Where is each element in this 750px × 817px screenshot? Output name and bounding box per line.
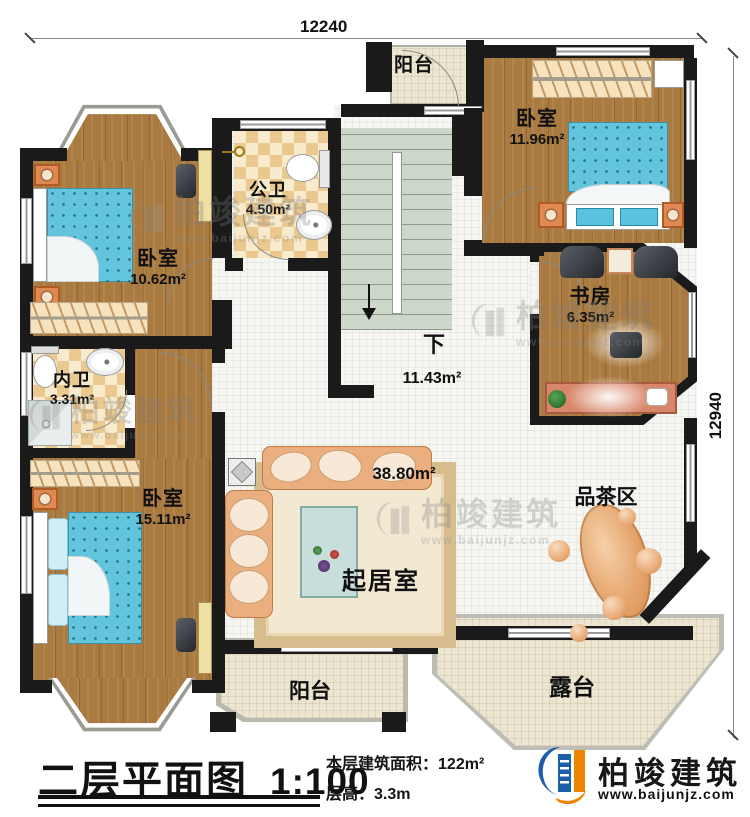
wall (225, 258, 243, 271)
stat-floor-height: 层高：3.3m (326, 780, 410, 804)
sofa-pillow (229, 534, 269, 568)
table-flowers (313, 546, 322, 555)
wardrobe (30, 302, 148, 334)
label-balcony-bottom: 阳台 (276, 680, 344, 704)
brand-url: www.baijunjz.com (598, 786, 735, 802)
wall (288, 258, 341, 271)
table-flowers (330, 550, 339, 559)
light-fixture (234, 146, 245, 157)
floor-cushion (618, 508, 636, 526)
table-flowers (318, 560, 330, 572)
shower-drain (42, 420, 50, 428)
wall (212, 349, 225, 363)
dimension-line-top (30, 38, 702, 39)
sofa-pillow (229, 570, 269, 604)
floor-cushion (636, 548, 662, 574)
tv-cabinet (198, 602, 212, 674)
label-public-bath: 公卫4.50m² (222, 180, 314, 217)
bed-cushion (620, 208, 658, 226)
floor-cushion (570, 624, 588, 642)
floor-cushion (548, 540, 570, 562)
bed-pillow (48, 574, 68, 626)
label-terrace: 露台 (536, 674, 608, 700)
bedroom-tl-window-left (21, 198, 32, 264)
stairs-arrow-head (362, 308, 376, 320)
bed-pillow (48, 518, 68, 570)
bed-headboard (33, 512, 48, 644)
floor-cushion (602, 596, 626, 620)
wardrobe (30, 460, 140, 487)
toilet-tank (319, 150, 330, 188)
bedroom-tr-window-right (686, 80, 695, 160)
plant (548, 390, 566, 408)
wall (212, 300, 232, 349)
light-fixture-arm (222, 151, 234, 153)
armchair (560, 246, 604, 278)
label-bedroom-tr: 卧室11.96m² (472, 108, 602, 148)
side-table (607, 248, 633, 274)
computer-monitor (610, 332, 642, 358)
desk-chair (646, 388, 668, 406)
label-study: 书房6.35m² (528, 286, 653, 326)
tv (176, 164, 196, 198)
nightstand (34, 164, 60, 186)
bed-sheet (566, 184, 670, 206)
wall (20, 148, 67, 161)
wall (20, 448, 135, 458)
floor-plan-page: 12240 12940 (0, 0, 750, 817)
title-underline (38, 804, 320, 807)
dimension-line-right (733, 56, 734, 738)
nightstand (662, 202, 684, 228)
public-bath-window (240, 120, 326, 129)
label-living: 起居室 (336, 568, 426, 596)
wall (464, 243, 544, 256)
stairs-arrow-stem (368, 284, 370, 310)
label-tea-area: 品茶区 (564, 486, 648, 510)
wall (20, 680, 52, 693)
desk-lamp-glow (566, 376, 652, 418)
label-private-bath: 内卫3.31m² (22, 370, 122, 407)
wardrobe (532, 60, 652, 98)
label-bedroom-bl: 卧室15.11m² (108, 488, 218, 528)
toilet-tank (31, 346, 59, 354)
nightstand (32, 488, 58, 510)
corner-column (654, 60, 684, 88)
bed-cushion (576, 208, 614, 226)
nightstand (538, 202, 564, 228)
dimension-right-label: 12940 (706, 392, 726, 439)
tv (176, 618, 196, 652)
dimension-top-label: 12240 (300, 17, 347, 37)
tv-cabinet (198, 150, 212, 222)
stairs-rail (392, 152, 402, 314)
wall (125, 428, 135, 448)
armchair (634, 246, 678, 278)
label-stairs-down: 下 (418, 332, 450, 357)
wall-post (210, 712, 236, 732)
title-underline (38, 795, 320, 799)
label-living-area: 38.80m² (366, 464, 442, 484)
wall (192, 680, 225, 693)
toilet (286, 154, 319, 182)
wall-post (382, 712, 406, 732)
wall (125, 349, 135, 395)
sofa-pillow (229, 498, 269, 532)
label-stairs-area: 11.43m² (394, 370, 470, 388)
living-window-right (686, 444, 695, 522)
bedroom-tr-window-top (556, 47, 650, 56)
bedroom-bl-window-left (21, 516, 32, 594)
study-bay-window (688, 292, 696, 358)
bed-headboard (33, 188, 47, 282)
exterior-patch (210, 96, 334, 118)
wall (328, 385, 374, 398)
stat-floor-area: 本层建筑面积：122m² (326, 750, 484, 774)
label-bedroom-tl: 卧室10.62m² (93, 248, 223, 288)
brand-logo-icon (536, 742, 592, 809)
label-balcony-top: 阳台 (386, 55, 442, 77)
terrace-window (508, 628, 610, 638)
